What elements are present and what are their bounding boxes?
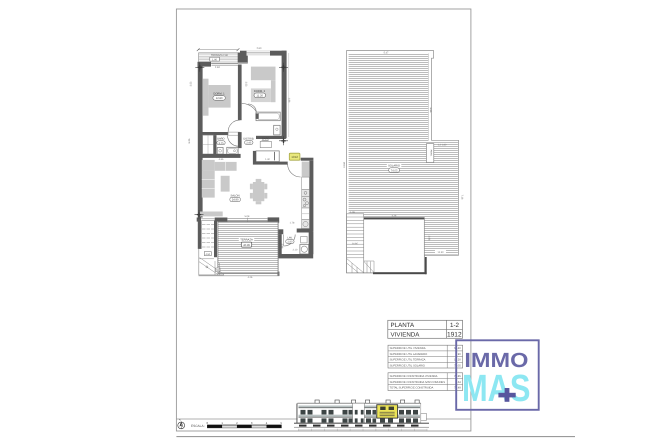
svg-text:PLANTA: PLANTA (391, 322, 415, 329)
svg-text:DORM. 2: DORM. 2 (254, 90, 266, 93)
svg-text:2.10: 2.10 (293, 249, 298, 252)
svg-text:24.90: 24.90 (232, 199, 239, 202)
svg-text:SUPERFICIE UTIL SOLARIO: SUPERFICIE UTIL SOLARIO (390, 364, 425, 367)
svg-text:62.40: 62.40 (454, 347, 461, 350)
svg-text:LAV.: LAV. (287, 236, 292, 239)
svg-text:2.45: 2.45 (246, 142, 252, 145)
svg-text:PERG.: PERG. (429, 150, 432, 157)
svg-text:SOLARIO: SOLARIO (388, 165, 400, 168)
svg-text:4.35: 4.35 (219, 158, 224, 161)
svg-text:TERRAZA: TERRAZA (240, 238, 253, 241)
svg-text:ESCALA :: ESCALA : (191, 424, 205, 428)
svg-text:VIVIENDA: VIVIENDA (391, 331, 421, 338)
svg-text:2.84: 2.84 (215, 66, 220, 69)
svg-text:2.96: 2.96 (281, 244, 284, 249)
svg-text:SUBE: SUBE (352, 243, 359, 246)
svg-text:SUPERFICIE CONSTRUIDA S/ZZ.COM: SUPERFICIE CONSTRUIDA S/ZZ.COMUNES (390, 381, 446, 384)
svg-text:DISTRIB.: DISTRIB. (243, 137, 254, 140)
svg-text:1.2 1.80: 1.2 1.80 (438, 144, 447, 147)
svg-text:70.85: 70.85 (454, 375, 461, 378)
svg-text:1.80: 1.80 (212, 58, 218, 61)
svg-text:4.26: 4.26 (392, 215, 397, 218)
svg-text:12.80: 12.80 (216, 97, 223, 100)
svg-text:1.06: 1.06 (350, 211, 355, 214)
svg-text:74.05: 74.05 (454, 364, 461, 367)
svg-text:BAÑO: BAÑO (262, 136, 269, 140)
svg-text:40.95: 40.95 (243, 244, 250, 247)
svg-text:8.05: 8.05 (188, 138, 191, 143)
svg-text:4.50: 4.50 (205, 253, 210, 256)
svg-text:11.20: 11.20 (256, 94, 263, 97)
svg-text:5.08: 5.08 (245, 215, 250, 218)
svg-text:1-2: 1-2 (450, 322, 460, 329)
svg-text:SUPERFICIE CONSTRUIDA VIVIENDA: SUPERFICIE CONSTRUIDA VIVIENDA (390, 375, 438, 378)
svg-text:4.26: 4.26 (248, 276, 253, 279)
svg-text:1.40: 1.40 (265, 158, 270, 161)
svg-text:2.96: 2.96 (428, 236, 431, 241)
svg-text:5.47: 5.47 (384, 51, 389, 54)
svg-text:2.90: 2.90 (287, 241, 293, 244)
svg-text:TOTAL SUPERFICIE CONSTRUIDA: TOTAL SUPERFICIE CONSTRUIDA (390, 387, 434, 390)
svg-text:TERRAZA 2.80: TERRAZA 2.80 (211, 54, 229, 57)
svg-text:1912: 1912 (291, 155, 298, 159)
svg-text:3.53: 3.53 (190, 81, 193, 86)
svg-text:DORM. 1: DORM. 1 (213, 93, 225, 96)
svg-text:BAÑO: BAÑO (217, 137, 224, 141)
svg-text:17.20: 17.20 (454, 359, 461, 362)
svg-text:10.60: 10.60 (343, 161, 346, 168)
svg-text:74.05: 74.05 (391, 169, 398, 172)
svg-text:1.86: 1.86 (288, 98, 291, 103)
svg-text:MAS: MAS (462, 368, 531, 410)
svg-text:2.60: 2.60 (257, 47, 262, 50)
svg-text:6.66: 6.66 (429, 108, 432, 113)
svg-text:12.30: 12.30 (438, 251, 445, 254)
svg-text:79.49: 79.49 (454, 387, 461, 390)
svg-text:SUPERFICIE UTIL TERRAZA: SUPERFICIE UTIL TERRAZA (390, 359, 426, 362)
svg-text:1912: 1912 (447, 332, 462, 339)
svg-text:SUPERFICIE UTIL VIVIENDA: SUPERFICIE UTIL VIVIENDA (390, 347, 426, 350)
svg-text:7.16: 7.16 (460, 195, 463, 200)
svg-text:1.78: 1.78 (290, 221, 295, 224)
svg-text:3.53: 3.53 (244, 82, 247, 87)
svg-text:3.75: 3.75 (218, 142, 224, 145)
svg-text:SALON: SALON (230, 194, 239, 197)
svg-text:SUPERFICIE UTIL LAVADERO: SUPERFICIE UTIL LAVADERO (390, 353, 428, 356)
